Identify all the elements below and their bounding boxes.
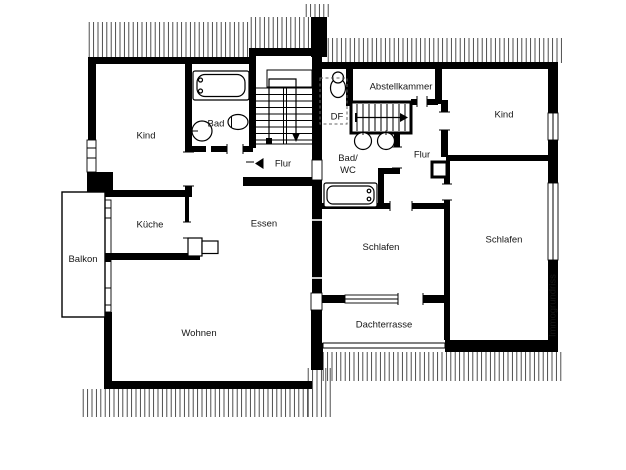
wall-segment xyxy=(104,312,112,389)
wall-segment xyxy=(423,295,448,303)
wall-segment xyxy=(311,343,323,370)
washbasin-icon xyxy=(378,133,395,150)
staircase-right xyxy=(351,102,411,133)
window xyxy=(312,160,322,180)
kitchen-counter-icon xyxy=(188,238,202,256)
washbasin-icon xyxy=(355,133,372,150)
wall-segment xyxy=(107,190,190,197)
bathtub-icon xyxy=(367,189,371,193)
bathtub-icon xyxy=(324,183,377,207)
room-label-kind-right: Kind xyxy=(494,110,513,121)
wall-segment xyxy=(548,62,558,113)
wall-segment xyxy=(88,57,255,64)
wall-segment xyxy=(243,177,318,186)
wc-icon xyxy=(331,72,346,98)
wall-segment xyxy=(105,381,312,389)
room-label-kind-left: Kind xyxy=(136,131,155,142)
wall-segment xyxy=(88,57,96,140)
wall-segment xyxy=(346,69,353,106)
window xyxy=(311,293,322,310)
stairs-direction-arrow xyxy=(292,133,300,142)
wall-segment xyxy=(312,48,322,160)
room-label-kueche: Küche xyxy=(137,220,164,231)
wall-segment xyxy=(378,170,384,209)
wall-segment xyxy=(104,253,200,260)
room-label-df: DF xyxy=(331,112,344,123)
wall-segment xyxy=(322,62,558,69)
wall-segment xyxy=(187,146,206,152)
terrace-edge xyxy=(323,343,445,348)
wall-segment xyxy=(441,130,448,157)
wall-segment xyxy=(378,168,400,174)
wall-segment xyxy=(445,340,558,352)
bathtub-icon xyxy=(367,197,371,201)
bathtub-icon xyxy=(199,78,203,82)
wall-segment xyxy=(412,203,448,209)
wall-segment xyxy=(548,140,558,183)
flur-direction-arrow xyxy=(255,158,264,169)
wall-segment xyxy=(311,310,322,343)
wall-segment xyxy=(185,197,189,222)
wall-segment xyxy=(312,180,322,293)
walls xyxy=(87,17,558,389)
windows xyxy=(87,113,558,312)
bathtub-icon xyxy=(199,89,203,93)
wall-segment xyxy=(435,69,442,104)
stairs-direction-arrow xyxy=(266,138,272,144)
room-label-essen: Essen xyxy=(251,219,277,230)
room-label-flur-right: Flur xyxy=(414,150,430,161)
floor-plan: Kind Bad Flur Küche Essen Balkon Wohnen … xyxy=(0,0,626,470)
wall-segment xyxy=(446,155,548,161)
kitchen-counter-icon xyxy=(202,241,218,254)
room-label-schlafen-1: Schlafen xyxy=(363,242,400,253)
room-label-flur-left: Flur xyxy=(275,159,291,170)
floor-plan-canvas: Kind Bad Flur Küche Essen Balkon Wohnen … xyxy=(0,0,626,470)
wall-segment xyxy=(441,100,448,112)
watermark: Immogrundriss xyxy=(548,274,559,337)
room-label-bad-wc-line1: Bad/ xyxy=(338,153,358,164)
room-label-schlafen-2: Schlafen xyxy=(486,235,523,246)
window xyxy=(87,140,96,172)
room-label-wohnen: Wohnen xyxy=(181,328,216,339)
wall-segment xyxy=(211,146,227,152)
room-label-balkon: Balkon xyxy=(68,254,97,265)
kitchen-counter-icon xyxy=(188,238,218,256)
room-label-bad-wc-line2: WC xyxy=(340,165,356,176)
room-label-bad: Bad xyxy=(208,119,225,130)
wall-segment xyxy=(185,186,192,197)
wall-segment xyxy=(185,63,192,152)
room-label-dachterrasse: Dachterrasse xyxy=(356,320,413,331)
bathtub-icon xyxy=(327,186,374,204)
staircase-left xyxy=(256,70,312,144)
wall-segment xyxy=(444,200,450,340)
bathtub-icon xyxy=(197,75,245,97)
wc-icon xyxy=(228,115,248,130)
room-label-abstellkammer: Abstellkammer xyxy=(370,82,433,93)
wall-segment xyxy=(249,56,256,148)
bathtub-icon xyxy=(193,71,249,100)
wall-segment xyxy=(322,295,345,303)
chimney-icon xyxy=(432,162,447,177)
